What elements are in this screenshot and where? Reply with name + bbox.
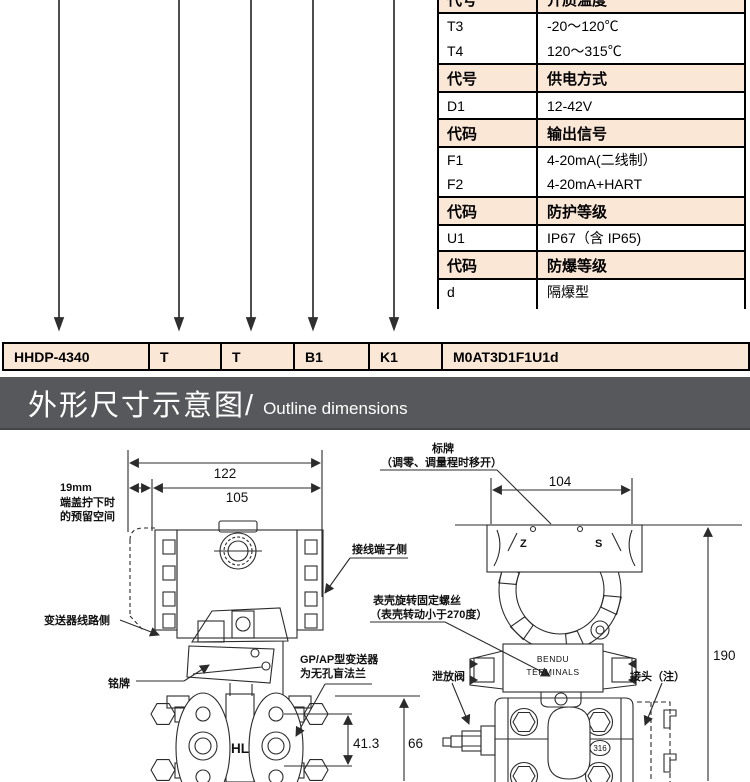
cover-note-line3: 的预留空间: [60, 509, 115, 523]
value-cell: -20～120℃: [538, 16, 744, 36]
model-cell: T: [150, 344, 222, 369]
value-header-cell: 防爆等级: [538, 255, 744, 276]
steel-grade-label: 316: [593, 744, 607, 753]
nameplate-label: 铭牌: [108, 676, 130, 690]
value-header-cell: 防护等级: [538, 201, 744, 222]
code-header-cell: 代号: [439, 0, 538, 12]
code-cell: d: [439, 280, 538, 304]
nameplate-assembly: [187, 608, 288, 696]
cover-note-line2: 端盖拧下时: [60, 495, 115, 509]
table-header-row: 代号供电方式: [439, 63, 744, 93]
selection-arrow: [390, 0, 398, 329]
code-cell: c: [439, 304, 538, 309]
value-header-cell: 供电方式: [538, 68, 744, 89]
vent-valve-label: 泄放阀: [432, 669, 465, 683]
value-header-cell: 输出信号: [538, 123, 744, 144]
vent-valve: [443, 726, 495, 755]
table-row: F14-20mA(二线制）: [439, 148, 744, 172]
dim-105-label: 105: [226, 490, 249, 505]
code-cell: T4: [439, 38, 538, 63]
terminal-text-line2: TERMINALS: [526, 667, 579, 677]
left-end-cap: [155, 530, 177, 630]
code-header-cell: 代码: [439, 198, 538, 224]
code-header-cell: 代码: [439, 252, 538, 278]
section-banner: 外形尺寸示意图/ Outline dimensions: [0, 377, 750, 430]
dim-66-label: 66: [408, 736, 423, 751]
table-header-row: 代号介质温度: [439, 0, 744, 14]
table-header-row: 代码输出信号: [439, 118, 744, 148]
value-cell: 120～315℃: [538, 41, 744, 61]
flange-note-line2: 为无孔盲法兰: [300, 666, 366, 680]
table-row: d隔爆型: [439, 280, 744, 304]
table-row: F24-20mA+HART: [439, 172, 744, 196]
code-header-cell: 代号: [439, 65, 538, 91]
table-row: U1IP67（含 IP65): [439, 226, 744, 250]
selection-arrows: [0, 0, 440, 340]
table-row: D112-42V: [439, 93, 744, 118]
terminal-text-line1: BENDU: [537, 654, 569, 664]
value-cell: 隔爆型: [538, 282, 744, 302]
circuit-side-label: 变送器线路侧: [44, 613, 110, 627]
table-row: c无: [439, 304, 744, 309]
model-cell: M0AT3D1F1U1d: [443, 344, 748, 369]
selection-arrow: [55, 0, 63, 329]
process-flange: [151, 693, 328, 782]
hl-label: HL: [231, 741, 249, 756]
value-cell: 无: [538, 306, 744, 309]
value-cell: 4-20mA+HART: [538, 176, 744, 192]
outline-drawing: 122 105 19mm 端盖拧下时 的预留空间 变送器线路侧 接线端子侧 铭牌…: [0, 428, 750, 782]
tag-label-line1: 标牌: [431, 441, 454, 455]
value-cell: 4-20mA(二线制）: [538, 150, 744, 170]
selection-arrow: [247, 0, 255, 329]
model-code-row: HHDP-4340 T T B1 K1 M0AT3D1F1U1d: [2, 342, 750, 371]
code-cell: D1: [439, 93, 538, 118]
flange-note-line1: GP/AP型变送器: [300, 652, 379, 666]
span-mark: S: [595, 538, 602, 550]
model-cell: T: [222, 344, 295, 369]
value-cell: IP67（含 IP65): [538, 228, 744, 248]
code-cell: T3: [439, 14, 538, 38]
joint-label: 接头（注）: [630, 669, 685, 683]
table-header-row: 代码防爆等级: [439, 250, 744, 280]
model-cell: K1: [370, 344, 443, 369]
value-header-cell: 介质温度: [538, 0, 744, 10]
value-cell: 12-42V: [538, 98, 744, 114]
zero-mark: Z: [520, 538, 527, 550]
dim-104-label: 104: [549, 474, 572, 489]
code-header-cell: 代码: [439, 120, 538, 146]
conduit-adapter: [637, 702, 676, 782]
transmitter-body: [177, 530, 297, 638]
side-flange: [495, 698, 633, 782]
code-cell: U1: [439, 226, 538, 250]
table-row: T3-20～120℃: [439, 14, 744, 38]
selection-arrow: [309, 0, 317, 329]
tag-label-line2: （调零、调量程时移开）: [381, 455, 502, 469]
code-cell: F2: [439, 172, 538, 196]
model-cell: HHDP-4340: [4, 344, 150, 369]
dim-122-label: 122: [214, 466, 237, 481]
cover-clearance-outline: [130, 528, 157, 630]
selection-arrow: [175, 0, 183, 329]
table-header-row: 代码防护等级: [439, 196, 744, 226]
case-screw-label-line1: 表壳旋转固定螺丝: [372, 593, 461, 607]
model-cell: B1: [295, 344, 370, 369]
banner-title-cn: 外形尺寸示意图/: [28, 382, 255, 424]
banner-title-en: Outline dimensions: [263, 399, 408, 419]
terminal-side-label: 接线端子侧: [352, 542, 407, 556]
side-view: [370, 470, 742, 782]
dim-190-label: 190: [713, 648, 736, 663]
right-end-cap: [297, 530, 323, 630]
cover-note-line1: 19mm: [60, 482, 92, 494]
spec-table: 代号介质温度 T3-20～120℃ T4120～315℃ 代号供电方式 D112…: [437, 0, 746, 309]
table-row: T4120～315℃: [439, 38, 744, 63]
conduit-connection: [214, 521, 262, 569]
spec-sheet-page: 代号介质温度 T3-20～120℃ T4120～315℃ 代号供电方式 D112…: [0, 0, 750, 782]
case-screw-label-line2: （表壳转动小于270度）: [370, 607, 487, 621]
code-cell: F1: [439, 148, 538, 172]
dim-41-3-label: 41.3: [353, 736, 379, 751]
